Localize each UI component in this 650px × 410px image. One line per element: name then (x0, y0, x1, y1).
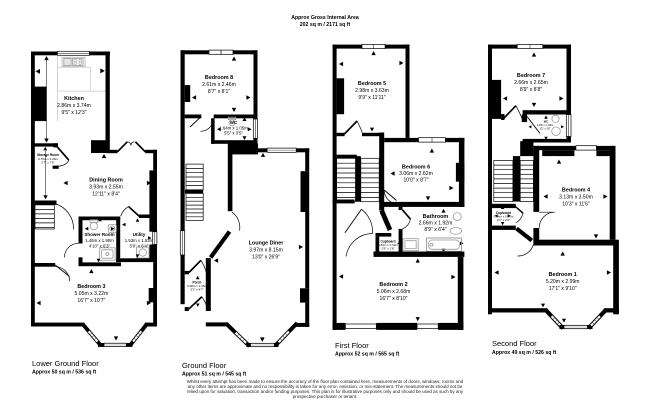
svg-text:Approx Gross Internal Area: Approx Gross Internal Area (291, 15, 359, 21)
svg-text:Shower Room: Shower Room (84, 232, 114, 237)
svg-text:202 sq m / 2171 sq ft: 202 sq m / 2171 sq ft (300, 22, 351, 28)
svg-text:3'2" x 4'7": 3'2" x 4'7" (190, 288, 203, 292)
svg-text:Bathroom: Bathroom (423, 214, 449, 220)
svg-text:8'9" x 6'4": 8'9" x 6'4" (424, 227, 446, 233)
svg-text:Kitchen: Kitchen (64, 96, 84, 102)
svg-text:13'0" x 26'9": 13'0" x 26'9" (252, 255, 280, 261)
svg-text:Approx 51 sq m / 545 sq ft: Approx 51 sq m / 545 sq ft (182, 372, 247, 378)
svg-text:2'7" x 7'5": 2'7" x 7'5" (41, 161, 54, 165)
svg-text:2'1" x 2'0": 2'1" x 2'0" (497, 218, 510, 222)
svg-text:2.86m x 3.74m: 2.86m x 3.74m (57, 103, 91, 109)
svg-text:2.98m x 3.63m: 2.98m x 3.63m (355, 88, 389, 94)
svg-text:16'7" x 10'7": 16'7" x 10'7" (77, 298, 105, 304)
svg-text:3'5" x 3'6": 3'5" x 3'6" (540, 127, 551, 130)
svg-text:8'7" x 8'1": 8'7" x 8'1" (208, 89, 230, 95)
svg-text:Approx 50 sq m / 536 sq ft: Approx 50 sq m / 536 sq ft (32, 370, 97, 376)
svg-text:Bedroom 2: Bedroom 2 (379, 282, 407, 288)
svg-text:Bedroom 1: Bedroom 1 (549, 272, 577, 278)
svg-text:Utility: Utility (133, 232, 146, 237)
svg-text:5.06m x 2.68m: 5.06m x 2.68m (377, 289, 411, 295)
svg-text:9'9" x 11'11": 9'9" x 11'11" (358, 95, 385, 101)
svg-text:Bedroom 8: Bedroom 8 (205, 75, 233, 81)
svg-text:10'0" x 8'7": 10'0" x 8'7" (403, 178, 428, 184)
svg-text:Bedroom 5: Bedroom 5 (358, 81, 386, 87)
svg-text:16'7" x 8'10": 16'7" x 8'10" (380, 296, 408, 302)
svg-text:Bedroom 3: Bedroom 3 (77, 284, 105, 290)
svg-text:First Floor: First Floor (335, 341, 369, 350)
svg-text:3.97m x 8.15m: 3.97m x 8.15m (249, 248, 283, 254)
svg-text:Bedroom 4: Bedroom 4 (562, 188, 590, 194)
svg-text:3.13m x 3.50m: 3.13m x 3.50m (559, 195, 593, 201)
svg-text:Bedroom 7: Bedroom 7 (517, 73, 545, 79)
svg-text:10'3" x 11'6": 10'3" x 11'6" (562, 202, 590, 208)
svg-text:WC: WC (544, 120, 549, 124)
svg-text:3.93m x 2.55m: 3.93m x 2.55m (89, 185, 123, 191)
svg-text:5'0" x 6'4": 5'0" x 6'4" (130, 244, 149, 249)
svg-text:Lounge Diner: Lounge Diner (249, 241, 285, 247)
svg-text:9'5" x 12'3": 9'5" x 12'3" (61, 110, 86, 116)
svg-text:4'10" x 6'3": 4'10" x 6'3" (89, 244, 111, 249)
svg-text:2.66m x 2.65m: 2.66m x 2.65m (514, 80, 548, 86)
svg-text:17'1" x 9'10": 17'1" x 9'10" (549, 286, 577, 292)
svg-text:Approx 52 sq m / 565 sq ft: Approx 52 sq m / 565 sq ft (335, 352, 400, 358)
svg-text:2.66m x 1.92m: 2.66m x 1.92m (419, 220, 453, 226)
svg-text:5'5" x 3'5": 5'5" x 3'5" (224, 130, 243, 135)
svg-text:3.06m x 2.62m: 3.06m x 2.62m (399, 171, 433, 177)
svg-text:Lower Ground Floor: Lower Ground Floor (32, 359, 99, 368)
svg-text:Ground Floor: Ground Floor (182, 361, 227, 370)
svg-text:2'9" x 1'8": 2'9" x 1'8" (381, 247, 394, 251)
svg-text:5.05m x 3.22m: 5.05m x 3.22m (75, 291, 109, 297)
svg-text:12'11" x 8'4": 12'11" x 8'4" (92, 192, 120, 198)
svg-text:1.46m x 1.90m: 1.46m x 1.90m (85, 238, 114, 243)
svg-text:Dining Room: Dining Room (89, 178, 123, 184)
svg-text:Approx 49 sq m / 526 sq ft: Approx 49 sq m / 526 sq ft (492, 350, 557, 356)
svg-text:WC: WC (230, 120, 238, 125)
svg-text:Bedroom 6: Bedroom 6 (402, 164, 430, 170)
svg-text:Second Floor: Second Floor (492, 339, 537, 348)
svg-text:5.20m x 2.99m: 5.20m x 2.99m (546, 279, 580, 285)
svg-text:8'9" x 8'8": 8'9" x 8'8" (520, 87, 542, 93)
svg-text:prospective purchaser or tenan: prospective purchaser or tenant. (293, 394, 358, 399)
svg-text:2.61m x 2.46m: 2.61m x 2.46m (202, 82, 236, 88)
